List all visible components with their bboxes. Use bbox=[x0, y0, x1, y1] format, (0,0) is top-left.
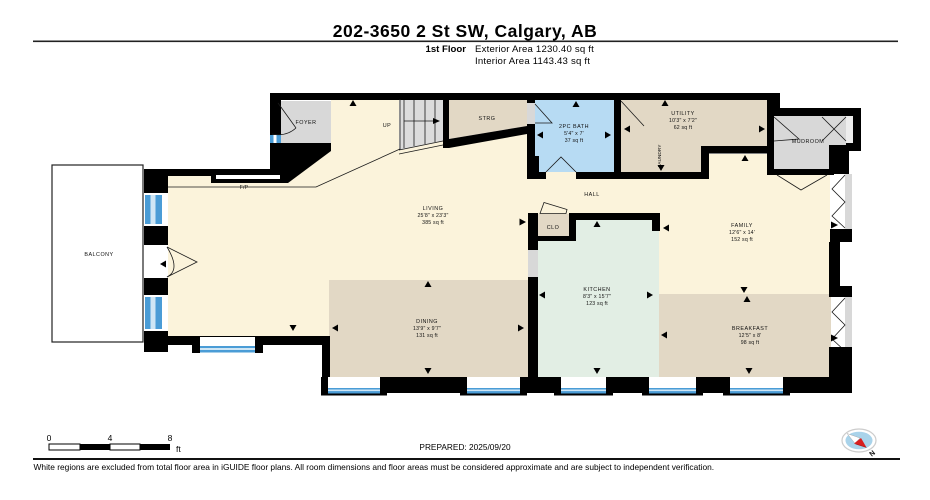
svg-text:12'5" x 8': 12'5" x 8' bbox=[739, 333, 762, 339]
svg-text:37 sq ft: 37 sq ft bbox=[565, 138, 584, 144]
svg-text:0: 0 bbox=[47, 433, 52, 443]
svg-text:98 sq ft: 98 sq ft bbox=[741, 340, 760, 346]
svg-text:CLO: CLO bbox=[547, 225, 560, 231]
svg-text:123 sq ft: 123 sq ft bbox=[586, 301, 608, 307]
svg-text:202-3650 2 St SW, Calgary, AB: 202-3650 2 St SW, Calgary, AB bbox=[333, 21, 597, 41]
svg-text:FAMILY: FAMILY bbox=[731, 223, 753, 229]
svg-text:MUDROOM: MUDROOM bbox=[792, 139, 825, 145]
svg-text:STRG: STRG bbox=[479, 116, 496, 122]
svg-text:KITCHEN: KITCHEN bbox=[583, 287, 610, 293]
svg-text:BREAKFAST: BREAKFAST bbox=[732, 326, 768, 332]
svg-text:F/P: F/P bbox=[240, 185, 249, 191]
svg-text:UP: UP bbox=[383, 123, 392, 129]
svg-text:LIVING: LIVING bbox=[423, 206, 444, 212]
svg-text:25'8" x 23'3": 25'8" x 23'3" bbox=[417, 213, 448, 219]
svg-text:Exterior Area 1230.40 sq ft: Exterior Area 1230.40 sq ft bbox=[475, 44, 594, 55]
svg-text:DINING: DINING bbox=[416, 319, 438, 325]
svg-text:LAUNDRY: LAUNDRY bbox=[657, 144, 663, 168]
svg-text:8'3" x 15'7": 8'3" x 15'7" bbox=[583, 294, 611, 300]
svg-text:BALCONY: BALCONY bbox=[84, 252, 113, 258]
svg-text:10'3" x 7'2": 10'3" x 7'2" bbox=[669, 118, 697, 124]
svg-text:5'4" x 7': 5'4" x 7' bbox=[564, 131, 584, 137]
svg-text:White regions are excluded fro: White regions are excluded from total fl… bbox=[34, 462, 715, 472]
svg-text:PREPARED: 2025/09/20: PREPARED: 2025/09/20 bbox=[419, 442, 511, 452]
svg-text:Interior Area 1143.43 sq ft: Interior Area 1143.43 sq ft bbox=[475, 56, 590, 67]
svg-text:131 sq ft: 131 sq ft bbox=[416, 333, 438, 339]
svg-text:2PC BATH: 2PC BATH bbox=[559, 124, 589, 130]
svg-text:385 sq ft: 385 sq ft bbox=[422, 220, 444, 226]
svg-text:1st Floor: 1st Floor bbox=[425, 44, 466, 55]
svg-text:FOYER: FOYER bbox=[295, 120, 316, 126]
svg-text:152 sq ft: 152 sq ft bbox=[731, 237, 753, 243]
svg-text:4: 4 bbox=[108, 433, 113, 443]
svg-text:62 sq ft: 62 sq ft bbox=[674, 125, 693, 131]
svg-text:13'9" x 9'7": 13'9" x 9'7" bbox=[413, 326, 441, 332]
svg-text:ft: ft bbox=[176, 444, 181, 454]
svg-text:12'6" x 14': 12'6" x 14' bbox=[729, 230, 755, 236]
svg-text:8: 8 bbox=[168, 433, 173, 443]
svg-text:UTILITY: UTILITY bbox=[671, 111, 695, 117]
svg-text:HALL: HALL bbox=[584, 192, 600, 198]
